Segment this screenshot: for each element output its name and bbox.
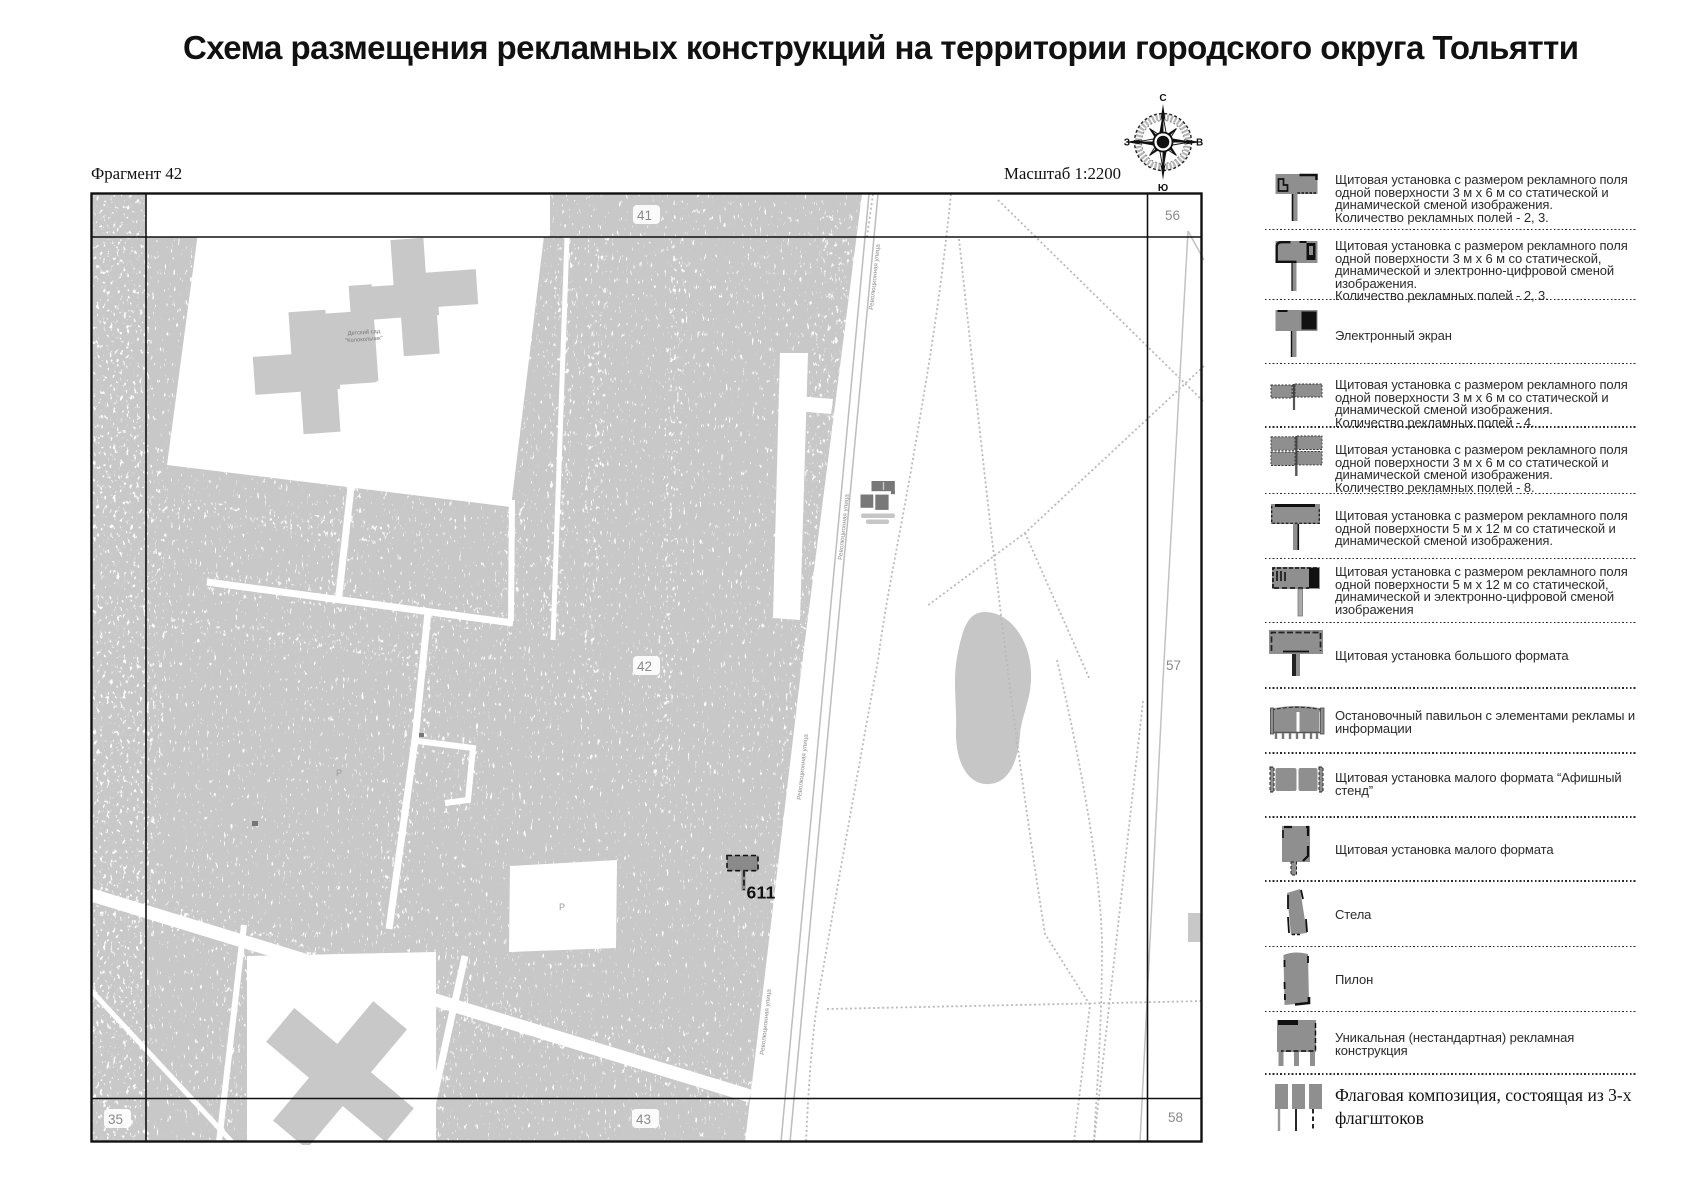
svg-text:Р: Р (559, 902, 565, 912)
svg-text:42: 42 (637, 659, 652, 674)
svg-text:Р: Р (336, 768, 342, 778)
svg-text:43: 43 (636, 1112, 651, 1127)
svg-text:35: 35 (108, 1112, 123, 1127)
svg-text:С: С (1159, 93, 1166, 104)
svg-text:57: 57 (1166, 658, 1181, 673)
svg-text:В: В (1196, 138, 1203, 149)
svg-text:58: 58 (1168, 1110, 1183, 1125)
svg-text:56: 56 (1165, 208, 1180, 223)
svg-text:З: З (1124, 138, 1130, 149)
svg-text:41: 41 (637, 208, 652, 223)
svg-text:611: 611 (747, 883, 776, 903)
